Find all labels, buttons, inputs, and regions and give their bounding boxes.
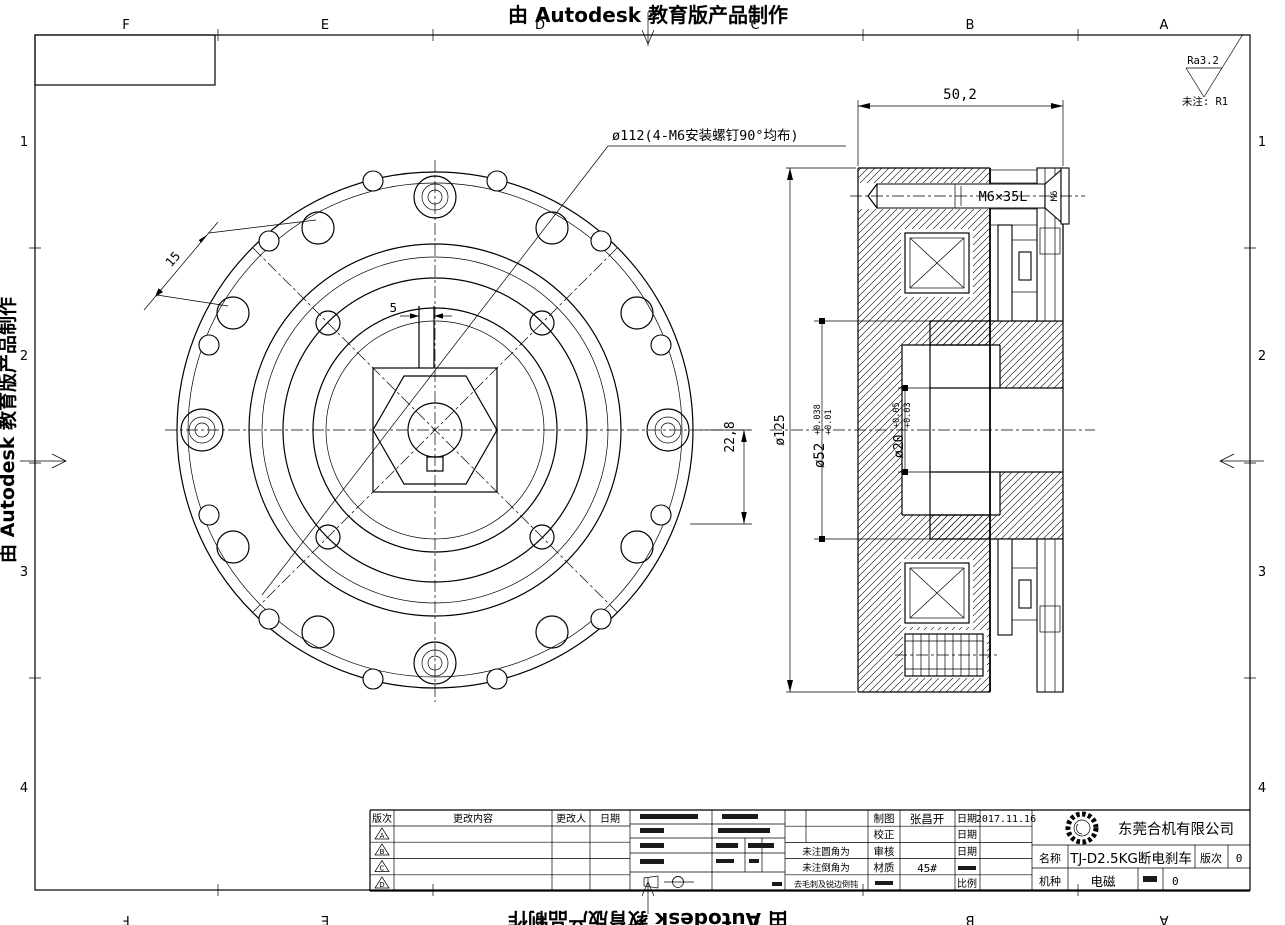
date-label: 日期 <box>957 846 977 858</box>
company-name: 东莞合机有限公司 <box>1118 821 1234 838</box>
rev-header-content: 更改内容 <box>453 812 493 825</box>
dim-text-outer-dia: ø125 <box>773 414 788 445</box>
section-view: M6×35L M6 50,2 ø125 ø52 +0.038 +0 <box>770 87 1095 692</box>
drawn-by-value: 张昌开 <box>910 812 945 826</box>
zone-col-label: E <box>321 912 329 925</box>
zone-col-label: C <box>750 18 759 33</box>
zone-row-label: 2 <box>20 349 28 364</box>
company-logo <box>1068 814 1096 842</box>
date-label: 日期 <box>957 829 977 841</box>
dim-keyway-depth: 22,8 <box>690 421 752 524</box>
dim-text-hub-tol-hi: +0.038 <box>813 404 823 435</box>
zone-col-label: A <box>1159 912 1168 925</box>
corner-box <box>35 35 215 85</box>
proof-label: 校正 <box>874 828 895 841</box>
material-label: 材质 <box>874 861 895 874</box>
zone-col-label: D <box>535 912 545 925</box>
rev-mark: B <box>380 848 385 856</box>
rev-header-date: 日期 <box>600 813 620 825</box>
approval-block <box>630 810 785 891</box>
name-value: TJ-D2.5KG断电刹车 <box>1069 850 1192 867</box>
zone-col-label: D <box>535 18 545 33</box>
zone-row-label: 3 <box>1258 565 1266 580</box>
chamfer-note: 未注倒角为 <box>802 862 850 874</box>
fillet-note: 未注圆角为 <box>802 846 850 858</box>
zone-col-label: C <box>750 912 759 925</box>
date-label: 日期 <box>957 813 977 825</box>
dim-text-bore-tol-lo: +0.03 <box>903 402 913 428</box>
dim-text-keyway-depth: 22,8 <box>723 421 738 452</box>
zone-col-label: E <box>321 18 329 33</box>
drawn-label: 制图 <box>874 812 895 825</box>
deburr-note: 去毛刺及锐边倒钝 <box>794 879 858 889</box>
zone-col-label: F <box>122 18 129 33</box>
front-view: 5 15 22,8 ø112(4-M6安装螺钉90°均布) <box>144 128 846 702</box>
drawing-frame <box>20 12 1264 914</box>
zone-col-label: A <box>1160 18 1169 33</box>
audit-label: 审核 <box>874 845 895 858</box>
model-label: 机种 <box>1039 874 1061 888</box>
dim-text-hub-tol-lo: +0.01 <box>824 409 834 435</box>
zone-letters: F E D C B A F E D C B A 1 2 3 4 1 2 3 4 <box>20 18 1266 925</box>
zone-row-label: 2 <box>1258 349 1266 364</box>
dim-text-bolt: M6×35L <box>979 189 1028 205</box>
roughness-note: Ra3.2 未注: R1 <box>1182 34 1243 108</box>
zone-row-label: 4 <box>1258 781 1266 796</box>
keyway-slot <box>419 306 434 368</box>
rev-header-person: 更改人 <box>556 812 586 825</box>
rev-mark: A <box>380 832 385 840</box>
zone-row-label: 4 <box>20 781 28 796</box>
zone-row-label: 1 <box>1258 135 1266 150</box>
zone-row-label: 3 <box>20 565 28 580</box>
zone-col-label: B <box>966 912 975 925</box>
date-value: 2017.11.16 <box>976 814 1036 825</box>
dim-text-hole-pitch: 15 <box>162 248 183 269</box>
dim-text-bore-dia: ø20 <box>892 435 907 458</box>
dim-text-bolt-circle: ø112(4-M6安装螺钉90°均布) <box>612 128 799 144</box>
dim-text-hub-dia: ø52 <box>812 443 828 468</box>
dim-text-keyway-width: 5 <box>389 300 397 315</box>
version-label: 版次 <box>1200 851 1222 865</box>
model-value: 电磁 <box>1090 874 1116 889</box>
rev-mark: C <box>380 865 385 873</box>
rev-mark: D <box>379 881 384 889</box>
dim-hole-pitch: 15 <box>144 220 316 310</box>
material-value: 45# <box>917 862 937 875</box>
zone-col-label: F <box>122 912 129 925</box>
dim-text-overall-width: 50,2 <box>943 87 977 103</box>
zone-row-label: 1 <box>20 135 28 150</box>
version-value: 0 <box>1236 852 1243 865</box>
drawing-canvas: 由 Autodesk 教育版产品制作 由 Autodesk 教育版产品制作 由 … <box>0 0 1285 925</box>
bolt-circle-label: ø112(4-M6安装螺钉90°均布) <box>608 128 846 146</box>
title-block: 制图 张昌开 日期 2017.11.16 校正 日期 未注圆角为 审核 日期 未… <box>785 810 1250 891</box>
zone-col-label: B <box>966 18 975 33</box>
dim-text-bolt-thread: M6 <box>1050 191 1060 202</box>
cad-drawing-page: 由 Autodesk 教育版产品制作 由 Autodesk 教育版产品制作 由 … <box>0 0 1285 925</box>
projection-symbol <box>644 876 694 888</box>
roughness-value: Ra3.2 <box>1187 55 1219 67</box>
unnoted-radius-note: 未注: R1 <box>1182 95 1228 108</box>
watermark-left: 由 Autodesk 教育版产品制作 <box>0 297 19 563</box>
name-label: 名称 <box>1039 851 1061 865</box>
sheet-value: 0 <box>1172 875 1179 888</box>
dim-text-bore-tol-hi: +0.05 <box>892 402 902 428</box>
rev-header-version: 版次 <box>372 812 392 825</box>
scale-label: 比例 <box>957 877 977 890</box>
dim-overall-width: 50,2 <box>858 87 1063 166</box>
